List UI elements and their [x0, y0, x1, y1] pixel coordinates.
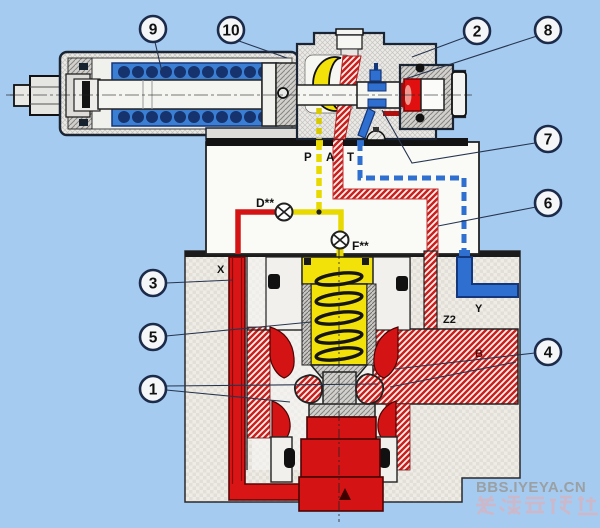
svg-text:P: P: [304, 152, 312, 164]
svg-text:Z2: Z2: [443, 314, 456, 326]
svg-text:BBS.IYEYA.CN: BBS.IYEYA.CN: [476, 479, 586, 496]
svg-text:Y: Y: [475, 303, 483, 315]
svg-text:7: 7: [544, 132, 553, 149]
svg-text:2: 2: [473, 24, 482, 41]
svg-text:D**: D**: [256, 196, 274, 210]
svg-text:6: 6: [544, 196, 553, 213]
svg-text:9: 9: [149, 22, 158, 39]
svg-text:T: T: [347, 152, 354, 164]
svg-text:F**: F**: [352, 239, 369, 253]
svg-text:10: 10: [222, 23, 239, 40]
svg-text:3: 3: [149, 276, 158, 293]
svg-text:5: 5: [149, 330, 158, 347]
svg-text:X: X: [217, 264, 225, 276]
svg-text:1: 1: [149, 382, 158, 399]
svg-text:A: A: [326, 152, 334, 164]
svg-text:B: B: [475, 348, 483, 360]
svg-text:4: 4: [544, 345, 553, 362]
svg-text:8: 8: [544, 23, 553, 40]
